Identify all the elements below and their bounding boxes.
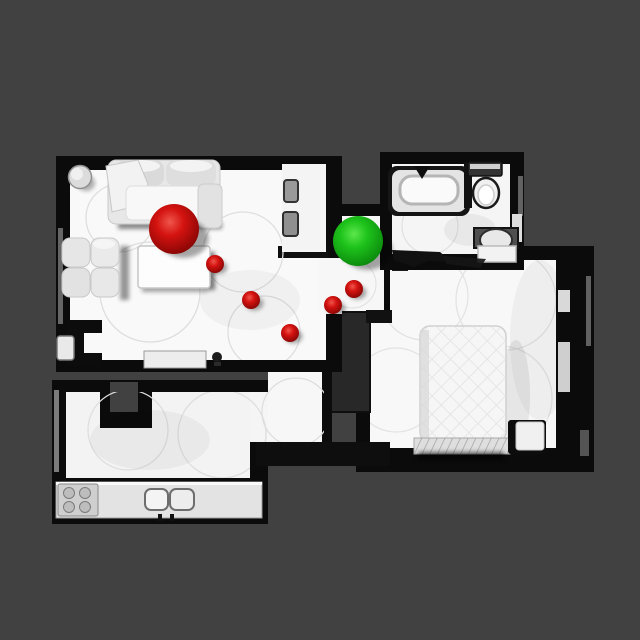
- tv-stand: [144, 351, 206, 368]
- window-sill: [558, 290, 570, 312]
- bed-edge-shadow: [420, 330, 429, 438]
- door-frame: [366, 310, 392, 323]
- bathroom: [380, 152, 524, 270]
- kitchen-counter: [56, 482, 262, 521]
- window-sill: [558, 342, 570, 392]
- render-viewport: [0, 0, 640, 640]
- nightstand: [508, 420, 546, 454]
- closet: [282, 164, 326, 252]
- bathtub: [388, 166, 470, 216]
- stove: [58, 484, 98, 516]
- floorplan-render: [0, 0, 640, 640]
- bathroom-sink: [474, 228, 518, 262]
